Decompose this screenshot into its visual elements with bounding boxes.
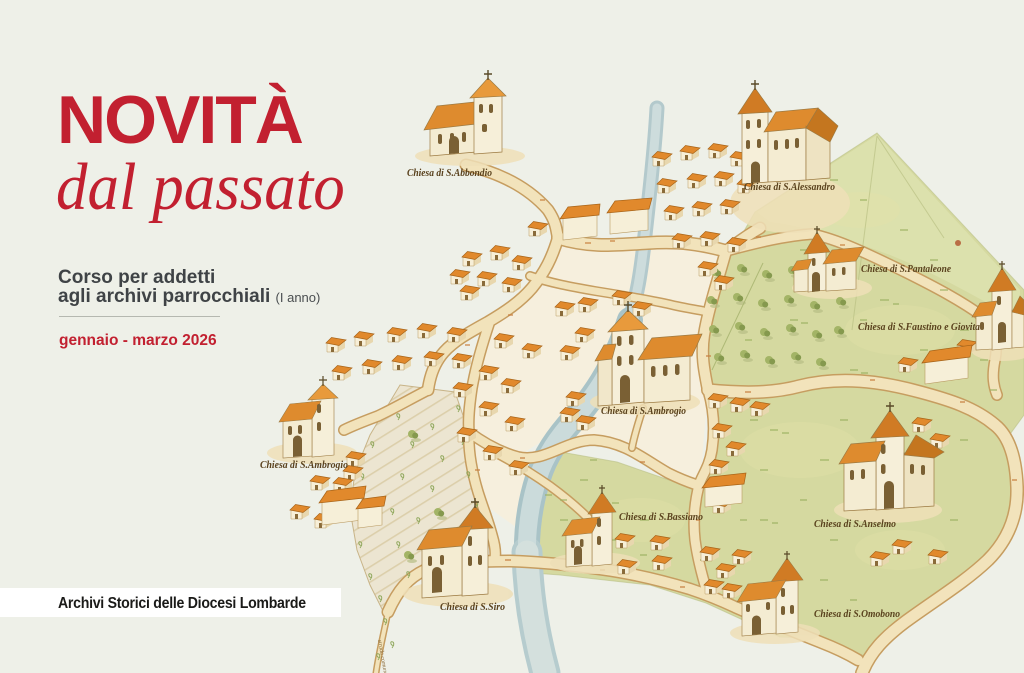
svg-text:Chiesa di S.Ambrogio: Chiesa di S.Ambrogio	[601, 406, 686, 417]
svg-text:Chiesa di S.Alessandro: Chiesa di S.Alessandro	[744, 182, 835, 193]
svg-text:Chiesa di S.Omobono: Chiesa di S.Omobono	[814, 609, 900, 620]
svg-text:Chiesa di S.Faustino e Giovita: Chiesa di S.Faustino e Giovita	[858, 322, 980, 333]
svg-text:Chiesa di S.Ambrogio: Chiesa di S.Ambrogio	[260, 460, 348, 471]
svg-text:Chiesa di S.Anselmo: Chiesa di S.Anselmo	[814, 519, 896, 530]
svg-text:Chiesa di S.Abbondio: Chiesa di S.Abbondio	[407, 168, 492, 179]
svg-text:Chiesa di S.Siro: Chiesa di S.Siro	[440, 602, 505, 613]
svg-text:Chiesa di S.Pantaleone: Chiesa di S.Pantaleone	[861, 264, 952, 275]
svg-text:Chiesa di S.Bassiano: Chiesa di S.Bassiano	[619, 512, 703, 523]
